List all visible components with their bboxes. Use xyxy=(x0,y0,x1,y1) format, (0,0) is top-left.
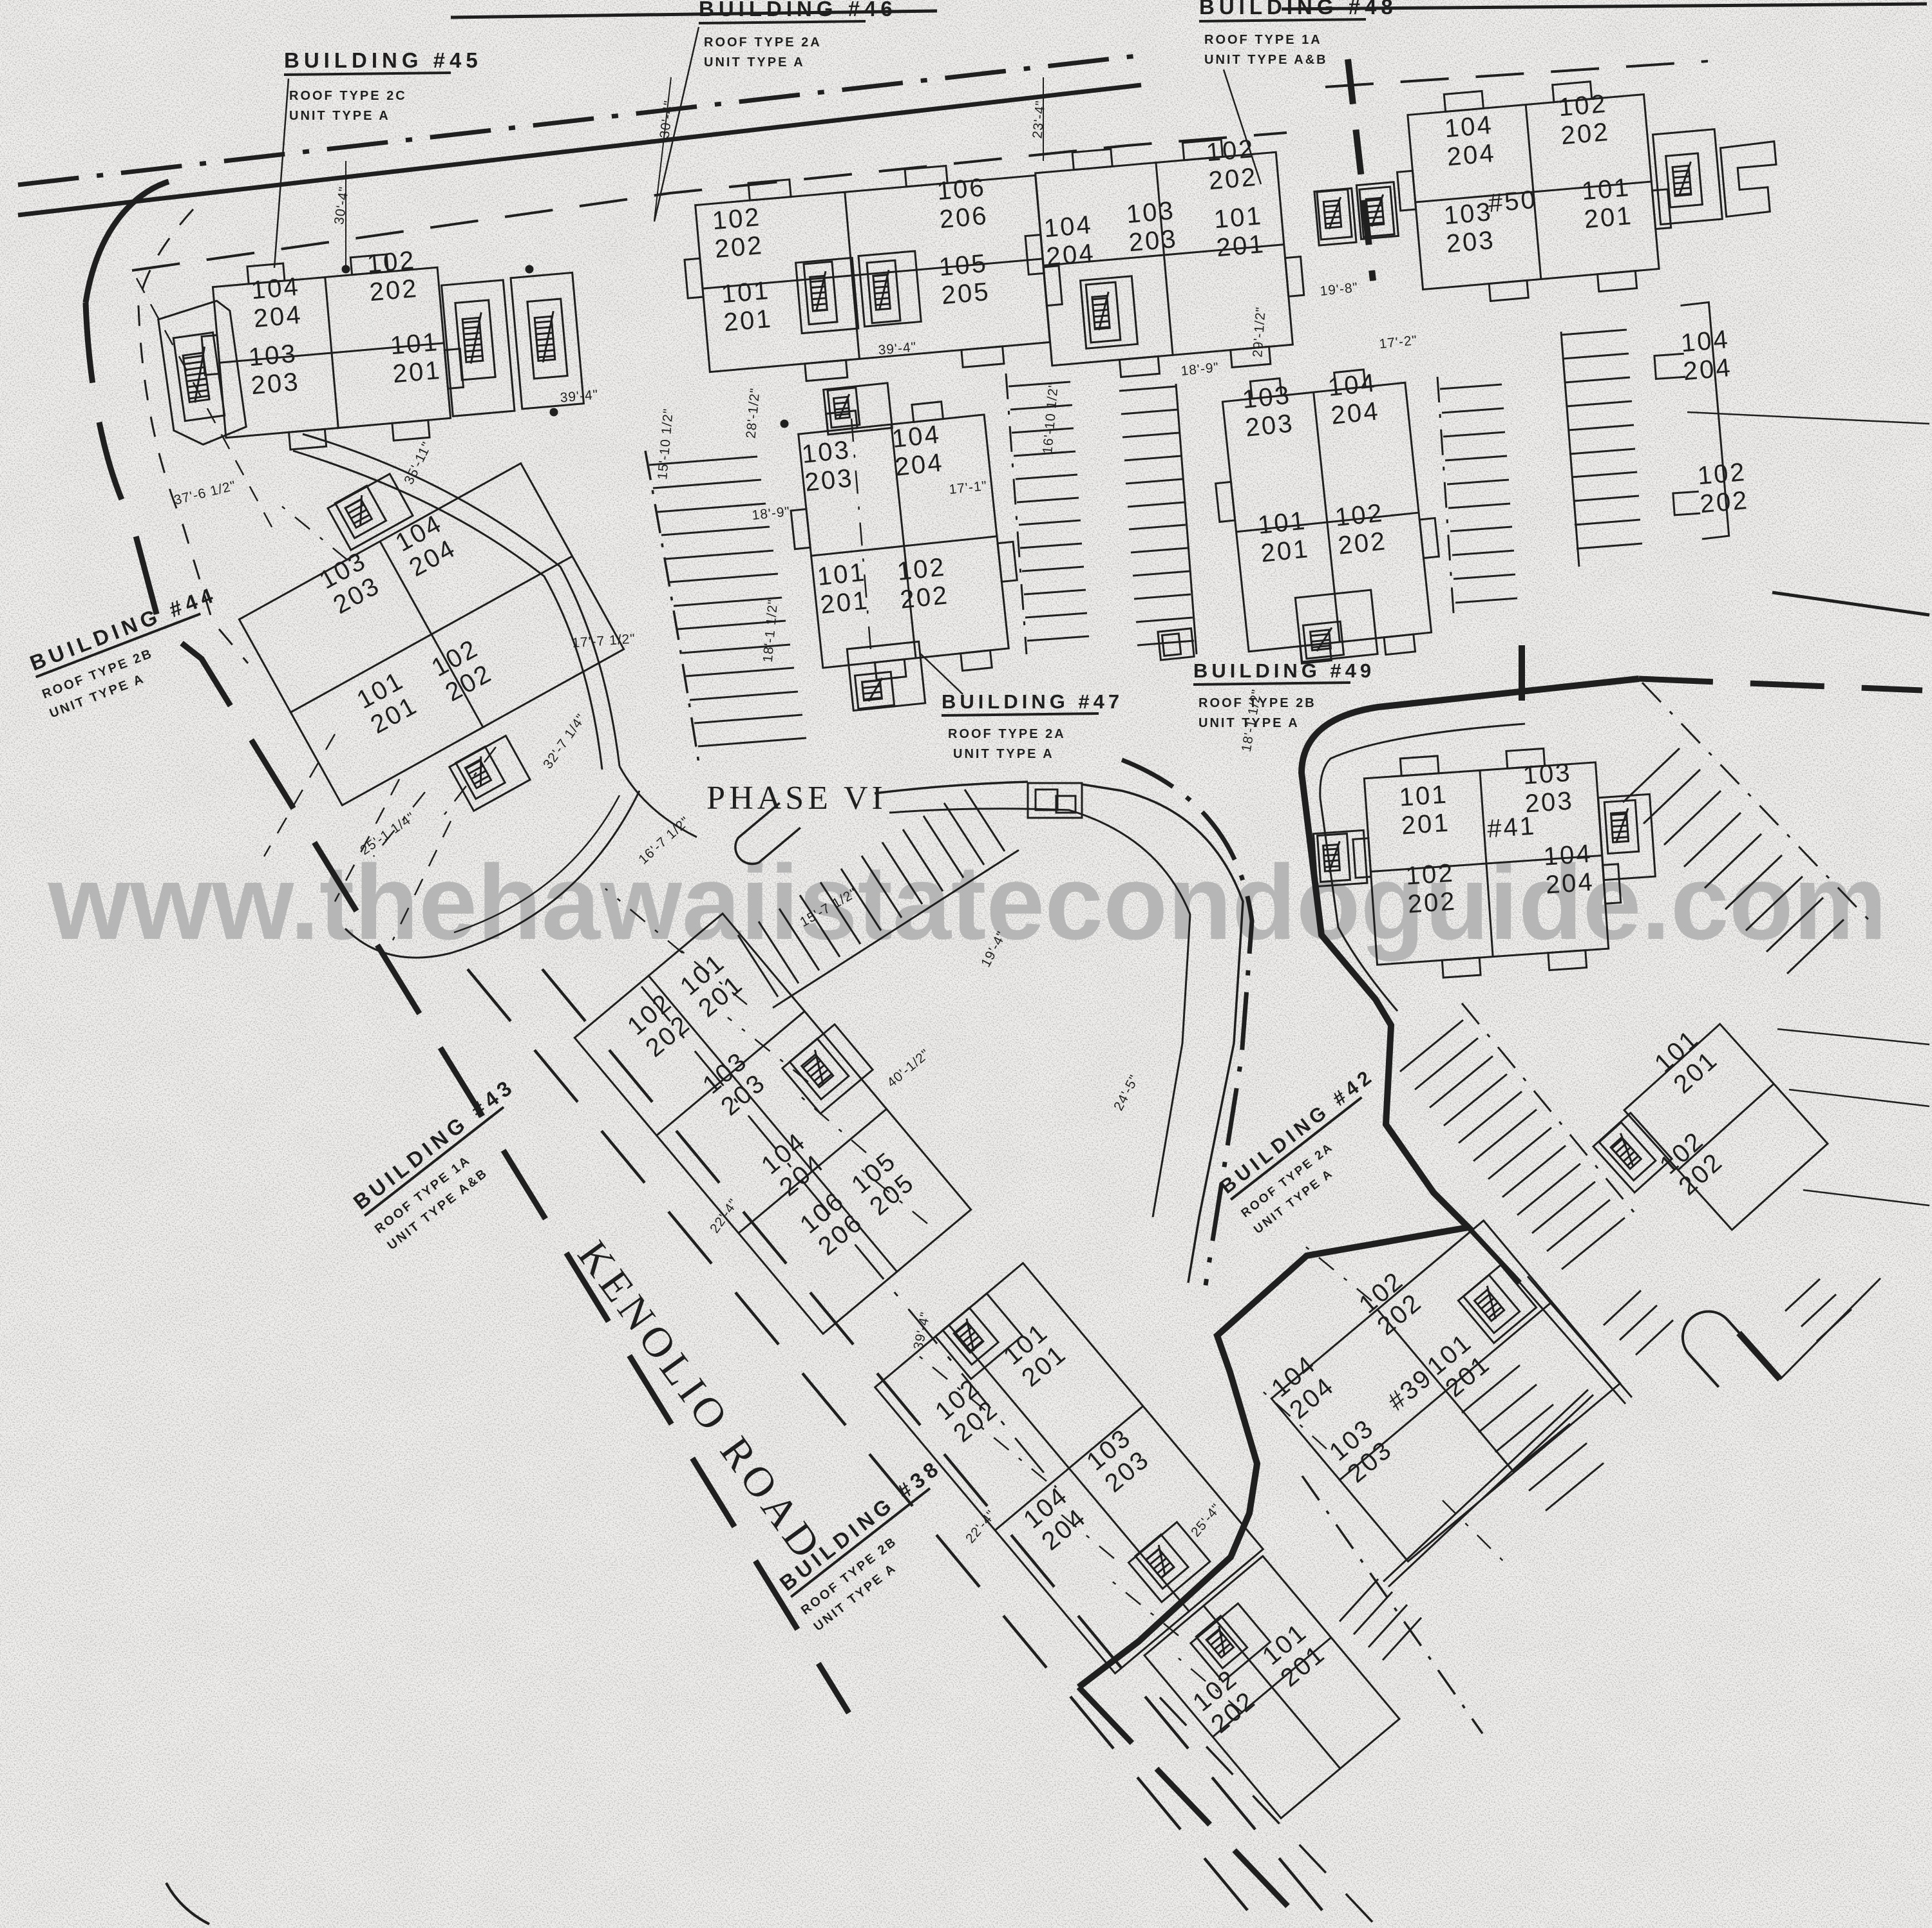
svg-text:104204: 104204 xyxy=(1443,111,1497,171)
svg-text:103203: 103203 xyxy=(1522,759,1575,818)
svg-text:UNIT TYPE A&B: UNIT TYPE A&B xyxy=(1204,53,1328,67)
svg-text:ROOF TYPE 1A: ROOF TYPE 1A xyxy=(1204,33,1322,47)
svg-text:102202: 102202 xyxy=(1696,458,1750,518)
svg-text:103203: 103203 xyxy=(247,339,301,400)
svg-text:ROOF TYPE 2A: ROOF TYPE 2A xyxy=(948,727,1066,741)
svg-text:101201: 101201 xyxy=(720,276,773,337)
svg-text:104204: 104204 xyxy=(1327,368,1381,430)
svg-text:101201: 101201 xyxy=(1580,173,1634,234)
svg-text:UNIT TYPE A: UNIT TYPE A xyxy=(289,109,390,123)
svg-text:105205: 105205 xyxy=(938,249,991,310)
svg-text:#50: #50 xyxy=(1487,185,1538,218)
svg-text:104204: 104204 xyxy=(250,272,303,333)
svg-text:103203: 103203 xyxy=(800,435,855,496)
svg-text:BUILDING #47: BUILDING #47 xyxy=(942,690,1123,713)
svg-text:101201: 101201 xyxy=(1256,506,1311,567)
svg-text:104204: 104204 xyxy=(1043,211,1096,271)
svg-text:101201: 101201 xyxy=(389,328,442,388)
svg-text:BUILDING #49: BUILDING #49 xyxy=(1193,659,1375,682)
svg-text:102202: 102202 xyxy=(711,203,764,263)
svg-text:UNIT TYPE A: UNIT TYPE A xyxy=(953,747,1054,761)
svg-text:ROOF TYPE 2A: ROOF TYPE 2A xyxy=(704,35,822,50)
svg-text:BUILDING #48: BUILDING #48 xyxy=(1199,0,1397,19)
svg-text:106206: 106206 xyxy=(936,173,989,234)
svg-text:UNIT TYPE A: UNIT TYPE A xyxy=(704,55,805,70)
svg-text:102202: 102202 xyxy=(1334,498,1388,560)
svg-text:104204: 104204 xyxy=(1680,325,1733,386)
svg-text:BUILDING #45: BUILDING #45 xyxy=(284,48,482,72)
svg-text:102202: 102202 xyxy=(1205,135,1258,195)
svg-text:102202: 102202 xyxy=(896,553,951,614)
svg-text:101201: 101201 xyxy=(816,558,871,619)
svg-text:103203: 103203 xyxy=(1241,381,1296,442)
svg-text:102202: 102202 xyxy=(1557,90,1611,150)
svg-text:102202: 102202 xyxy=(366,246,419,307)
svg-text:BUILDING #46: BUILDING #46 xyxy=(699,0,897,21)
svg-text:104204: 104204 xyxy=(891,420,945,481)
svg-text:102202: 102202 xyxy=(1405,859,1457,919)
svg-text:ROOF TYPE 2C: ROOF TYPE 2C xyxy=(289,89,407,103)
svg-text:103203: 103203 xyxy=(1125,196,1179,257)
svg-text:101201: 101201 xyxy=(1213,202,1266,262)
svg-text:104204: 104204 xyxy=(1542,840,1595,900)
svg-text:PHASE VI: PHASE VI xyxy=(706,780,887,817)
svg-text:101201: 101201 xyxy=(1398,780,1451,840)
svg-text:#41: #41 xyxy=(1486,811,1537,843)
